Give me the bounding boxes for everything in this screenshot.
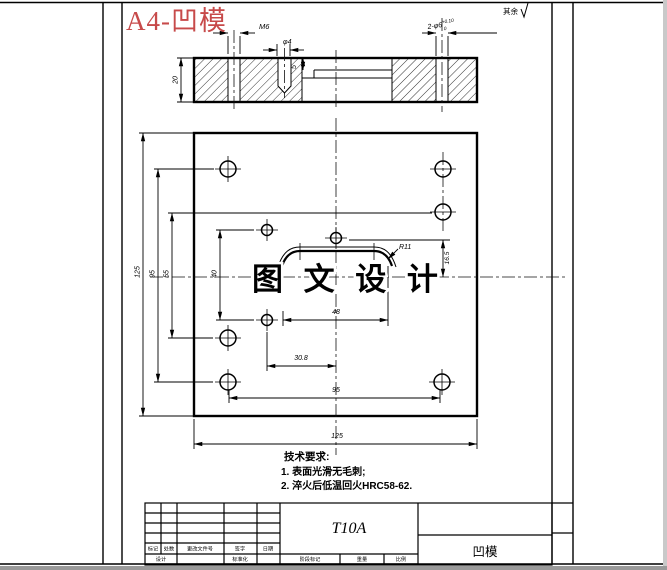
- dim-phi4: φ4: [283, 39, 292, 46]
- dim-h125: 125: [331, 433, 343, 440]
- cad-drawing: 20 M6 φ4 5 2-φ6+0.100 其余: [0, 0, 667, 570]
- watermark-text: 图 文 设 计: [252, 262, 444, 297]
- hatch-block-right2: [448, 59, 477, 101]
- tb-label-sign: 签字: [235, 545, 245, 553]
- dim-plate-height: 125: [135, 266, 142, 278]
- tech-item-1: 1. 表面光滑无毛刺;: [281, 465, 365, 478]
- window-edge-bottom: [0, 566, 667, 570]
- surface-note-text: 其余: [503, 6, 518, 16]
- dim-step: 5: [291, 65, 298, 69]
- dim-m6: M6: [259, 22, 270, 31]
- roughness-icon: [521, 3, 528, 17]
- section-view: [194, 18, 477, 112]
- tb-label-design: 设计: [156, 555, 166, 563]
- dim-h95: 95: [332, 387, 340, 394]
- dim-holes: 2-φ6+0.100: [426, 18, 456, 35]
- dim-v95: 95: [150, 270, 157, 278]
- dim-r11: R11: [399, 244, 411, 251]
- dim-h308: 30.8: [294, 355, 308, 362]
- dim-v55: 55: [164, 270, 171, 278]
- surface-roughness-note: 其余: [503, 3, 528, 17]
- tb-label-mark: 标记: [148, 545, 158, 553]
- hatch-block-left: [195, 59, 228, 101]
- dim-thickness: 20: [173, 76, 180, 85]
- dim-v40: 40: [212, 270, 219, 278]
- tb-label-weight: 重量: [357, 555, 367, 563]
- tb-label-changefile: 更改文件号: [187, 545, 213, 553]
- title-block: T10A 凹模 标记 处数 更改文件号 签字 日期 设计 标准化 阶段标记 重量…: [145, 503, 573, 565]
- tb-label-standard: 标准化: [232, 555, 248, 563]
- tb-label-stage: 阶段标记: [300, 555, 321, 563]
- tb-label-date: 日期: [263, 546, 273, 553]
- tech-item-2: 2. 淬火后低温回火HRC58-62.: [281, 479, 412, 492]
- drawing-title: A4-凹模: [126, 6, 227, 36]
- tb-label-scale: 比例: [396, 555, 406, 563]
- material-label: T10A: [332, 520, 367, 537]
- dim-h48: 48: [332, 309, 340, 316]
- dim-v165: 16.5: [444, 251, 451, 264]
- part-name-label: 凹模: [472, 545, 498, 559]
- tb-label-count: 处数: [164, 545, 175, 553]
- tech-heading: 技术要求:: [284, 450, 330, 463]
- technical-requirements: 技术要求: 1. 表面光滑无毛刺; 2. 淬火后低温回火HRC58-62.: [281, 450, 412, 492]
- window-edge-right: [663, 0, 667, 570]
- drawing-page: 20 M6 φ4 5 2-φ6+0.100 其余: [0, 0, 667, 570]
- hatch-block-right1: [392, 59, 436, 101]
